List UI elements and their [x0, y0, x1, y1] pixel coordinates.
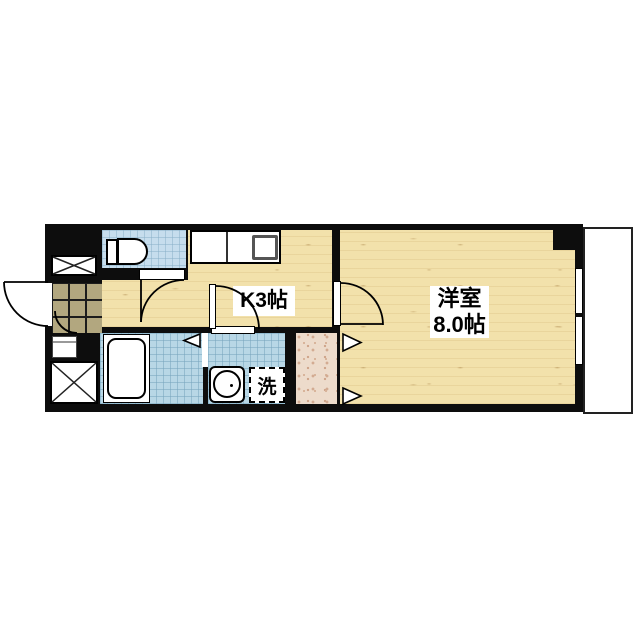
shoe-cabinet [52, 336, 77, 358]
kitchen-label: K3帖 [233, 286, 295, 316]
toilet-bowl-icon [117, 238, 148, 265]
entrance-door-arc [4, 282, 48, 326]
laundry-label: 洗 [257, 372, 276, 399]
washbasin-drain [230, 384, 233, 387]
shoe-cabinet-shelf [53, 341, 76, 343]
hallway-floor [102, 280, 188, 327]
western-room-label: 洋室 8.0帖 [430, 286, 489, 338]
western-room-name: 洋室 [430, 286, 489, 312]
washbasin-icon [209, 366, 245, 403]
closet-partition-wall [337, 333, 340, 404]
sink-icon [252, 235, 278, 260]
western-room-door-leaf [333, 281, 341, 326]
toilet-door-gap [139, 269, 185, 280]
bathroom-door-gap [202, 333, 208, 367]
washbasin-bowl [213, 370, 241, 398]
kitchen-counter [190, 230, 281, 264]
balcony [583, 227, 633, 414]
kitchen-door-leaf [209, 284, 216, 329]
counter-divider [226, 232, 228, 262]
floorplan-canvas: 洗 K3帖 洋室 8.0帖 [0, 0, 640, 640]
pipe-space-lower [50, 361, 98, 404]
corner-pillar [553, 224, 583, 250]
bathtub-icon [103, 334, 150, 403]
window-sash-tick [575, 313, 583, 317]
washroom-entrance-gap [211, 326, 255, 334]
bathtub-inner-rim [107, 338, 146, 399]
entrance-door-opening [45, 283, 52, 326]
western-room-size: 8.0帖 [430, 312, 489, 338]
entrance-tile-floor [52, 283, 102, 333]
washing-machine-space: 洗 [249, 367, 285, 403]
closet-floor [296, 333, 337, 404]
pipe-space-upper [51, 255, 97, 276]
